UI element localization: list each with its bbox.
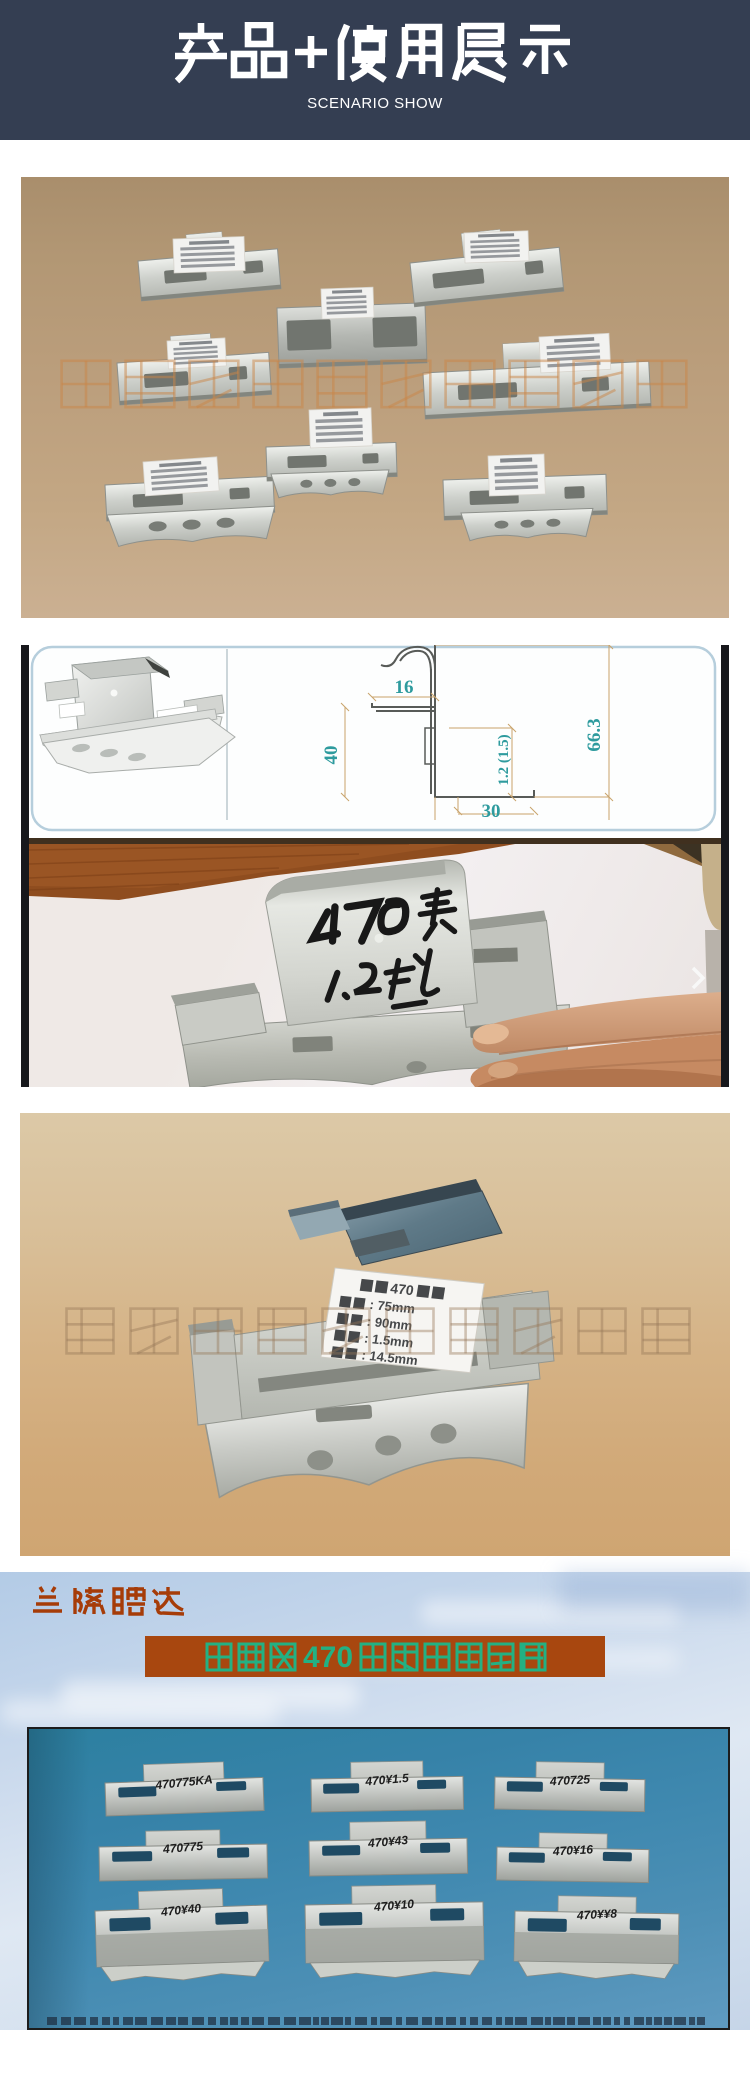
svg-text:1.2 (1.5): 1.2 (1.5) bbox=[496, 734, 512, 785]
svg-text:470¥¥8: 470¥¥8 bbox=[576, 1906, 618, 1922]
svg-text:470725: 470725 bbox=[549, 1772, 591, 1788]
svg-text:30: 30 bbox=[482, 801, 501, 822]
svg-text:66.3: 66.3 bbox=[584, 718, 605, 751]
svg-text:470: 470 bbox=[389, 1280, 415, 1298]
svg-text:470¥16: 470¥16 bbox=[552, 1842, 594, 1858]
svg-text:40: 40 bbox=[321, 746, 342, 765]
svg-text:16: 16 bbox=[395, 677, 414, 698]
svg-text:470: 470 bbox=[303, 1641, 353, 1674]
